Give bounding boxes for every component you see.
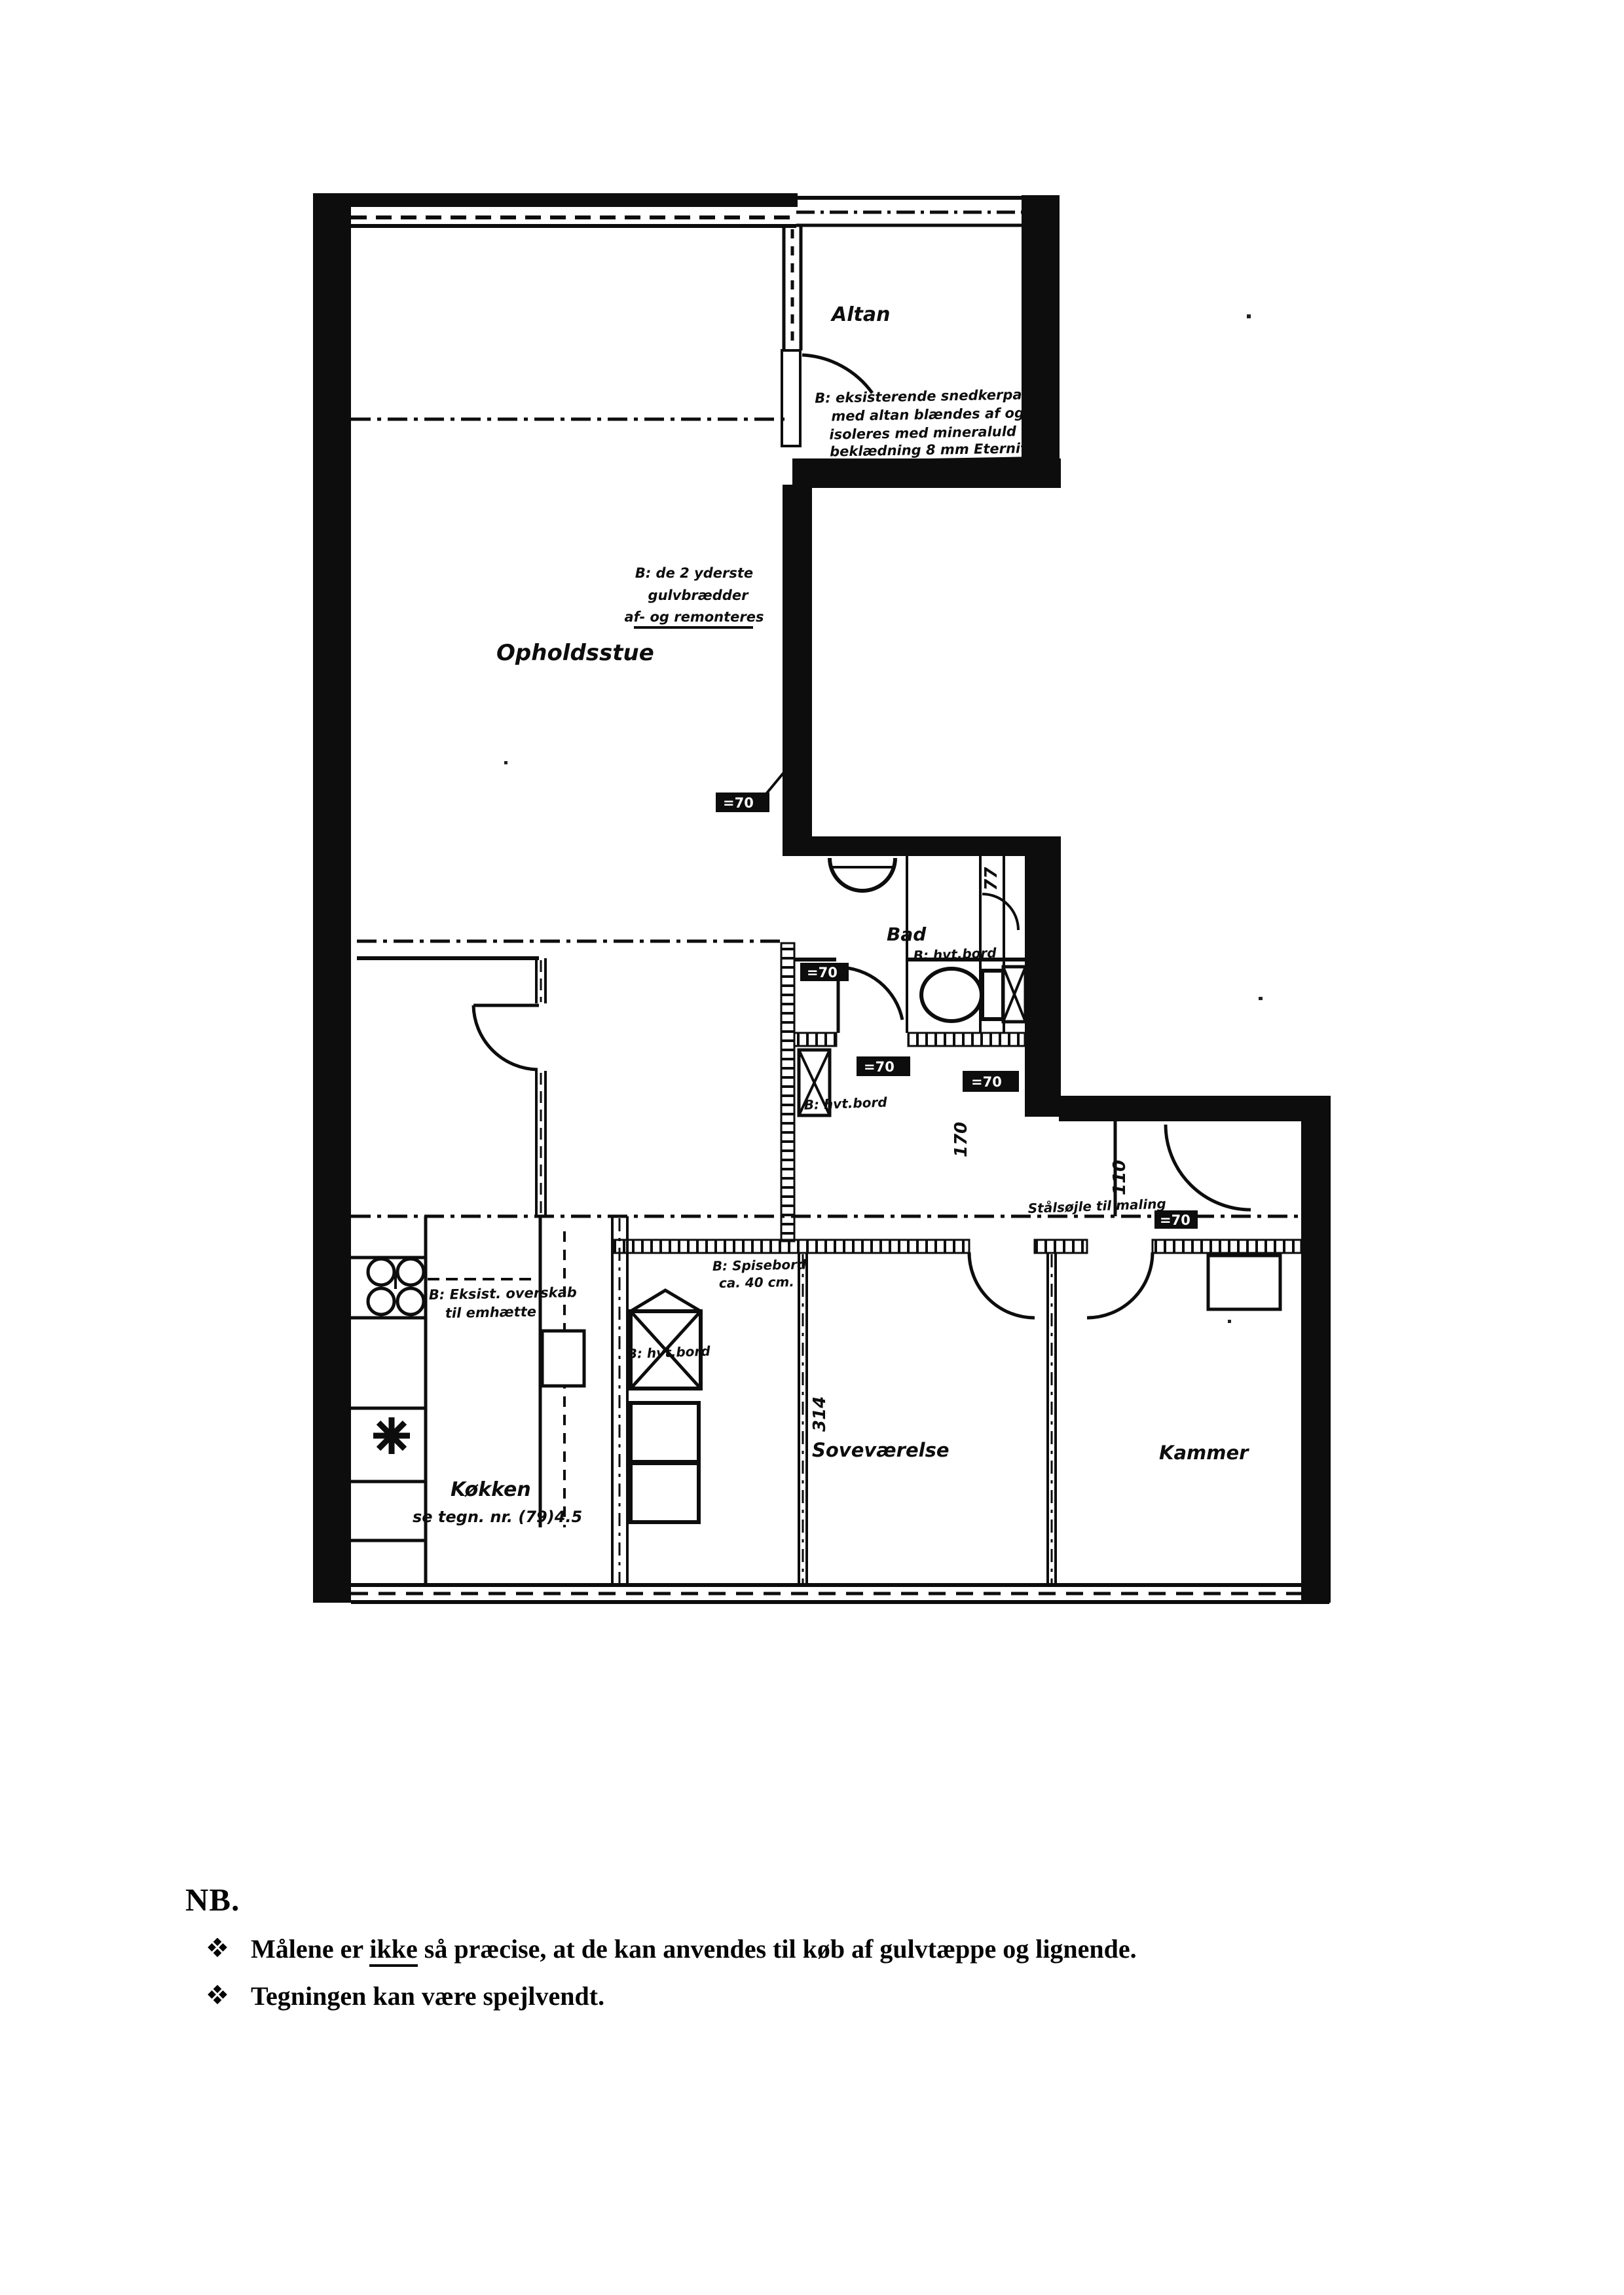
entrance-hall: [357, 958, 545, 1216]
annotation-cabinet: B: hvt.bord: [913, 945, 997, 963]
door-arc: [982, 894, 1018, 930]
door-arc: [1087, 1252, 1153, 1318]
note-text: Målene er: [251, 1934, 369, 1964]
room-label-opholdsstue: Opholdsstue: [496, 640, 654, 666]
furniture-symbol: [1208, 1256, 1280, 1309]
sink-symbol: [373, 1417, 410, 1454]
svg-text:gulvbrædder: gulvbrædder: [648, 588, 750, 603]
wall-segment: [783, 485, 812, 838]
toilet-symbol: [921, 969, 982, 1021]
wall-segment: [783, 836, 1026, 856]
dimension-tag: =70: [971, 1074, 1002, 1090]
floor-plan: =70 =70 =70 =70 =70 77 170 110 314 Altan: [308, 183, 1336, 1618]
cabinet-symbol: [631, 1403, 699, 1462]
note-heading: NB.: [185, 1881, 1469, 1918]
annotation-steel-column: Stålsøjle til maling: [1027, 1196, 1166, 1216]
door-arc: [1166, 1125, 1251, 1210]
svg-text:B: eksisterende snedkerparti: B: eksisterende snedkerparti: [815, 386, 1041, 406]
dimension-hall: 170: [951, 1122, 971, 1157]
wall-segment: [792, 458, 1061, 488]
note-item-1-text: Målene er ikke så præcise, at de kan anv…: [251, 1933, 1137, 1966]
door-arc: [473, 1005, 538, 1070]
annotation-floorboards: B: de 2 yderste gulvbrædder af- og remon…: [625, 565, 764, 627]
note-item-2-text: Tegningen kan være spejlvendt.: [251, 1980, 604, 2013]
svg-text:B: Eksist. overskab: B: Eksist. overskab: [429, 1284, 577, 1303]
dimension-tag: =70: [864, 1059, 895, 1075]
annotation-cabinet: B: hvt.bord: [627, 1343, 710, 1362]
annotation-kitchen: B: Eksist. overskab til emhætte: [429, 1284, 577, 1321]
dimension-shaft: 77: [982, 867, 1001, 891]
bottom-partitions: [612, 1216, 1153, 1585]
note-item-2: Tegningen kan være spejlvendt.: [185, 1980, 1469, 2013]
wall-segment: [1301, 1096, 1331, 1603]
diamond-bullet-icon: [207, 1937, 227, 1958]
svg-text:beklædning 8 mm Eternit: beklædning 8 mm Eternit: [830, 440, 1027, 459]
note-text-underlined: ikke: [369, 1934, 417, 1967]
scanned-page: =70 =70 =70 =70 =70 77 170 110 314 Altan: [0, 0, 1624, 2295]
dimension-tag: =70: [807, 965, 838, 980]
door-arc: [969, 1252, 1035, 1318]
annotation-balcony: B: eksisterende snedkerparti med altan b…: [815, 386, 1042, 462]
wall-segment: [1025, 836, 1061, 1117]
door-arc: [802, 355, 872, 393]
annotation-bedroom: B: Spisebord ca. 40 cm.: [712, 1256, 807, 1291]
stove-symbol: [368, 1259, 424, 1315]
note-block: NB. Målene er ikke så præcise, at de kan…: [185, 1881, 1469, 2013]
wall-segment: [1059, 1096, 1329, 1121]
room-label-bad: Bad: [887, 924, 927, 945]
note-item-1: Målene er ikke så præcise, at de kan anv…: [185, 1933, 1469, 1966]
diamond-bullet-icon: [207, 1985, 227, 2005]
wardrobe-cross-symbol: [631, 1290, 701, 1389]
svg-text:af- og remonteres: af- og remonteres: [625, 609, 764, 625]
note-text: så præcise, at de kan anvendes til køb a…: [418, 1934, 1137, 1964]
toilet-cistern-symbol: [982, 971, 1003, 1019]
dimension-bedroom: 314: [810, 1396, 830, 1432]
svg-text:isoleres med mineraluld -: isoleres med mineraluld -: [829, 423, 1027, 442]
dimension-tag: =70: [1160, 1212, 1190, 1228]
kitchen: [351, 1216, 584, 1585]
svg-text:til emhætte: til emhætte: [445, 1304, 537, 1321]
svg-text:ca. 40 cm.: ca. 40 cm.: [719, 1274, 794, 1291]
room-label-kammer: Kammer: [1159, 1442, 1249, 1464]
room-label-koekken: Køkken: [451, 1478, 531, 1501]
cabinet-symbol: [631, 1463, 699, 1522]
dimension-tag: =70: [723, 795, 754, 811]
appliance-symbol: [542, 1331, 584, 1386]
room-sublabel-koekken: se tegn. nr. (79)4.5: [413, 1508, 582, 1526]
room-label-sovevaerelse: Soveværelse: [812, 1439, 950, 1461]
svg-text:B: Spisebord: B: Spisebord: [712, 1256, 807, 1274]
svg-text:B: de 2 yderste: B: de 2 yderste: [635, 565, 753, 581]
dimension-entry: 110: [1110, 1160, 1130, 1195]
floor-plan-drawing: =70 =70 =70 =70 =70 77 170 110 314 Altan: [308, 183, 1336, 1618]
shaft-cross-symbol: [1003, 967, 1025, 1022]
wall-segment: [313, 193, 351, 1603]
wall-segment: [351, 193, 798, 207]
corridor-wardrobes: [631, 1290, 701, 1522]
washbasin-symbol: [830, 858, 895, 891]
room-label-altan: Altan: [830, 303, 890, 326]
door-leaf: [782, 350, 800, 446]
wall-segment: [1022, 195, 1060, 488]
annotation-cabinet: B: hvt.bord: [803, 1094, 887, 1113]
svg-text:med altan blændes af og: med altan blændes af og: [831, 405, 1024, 424]
